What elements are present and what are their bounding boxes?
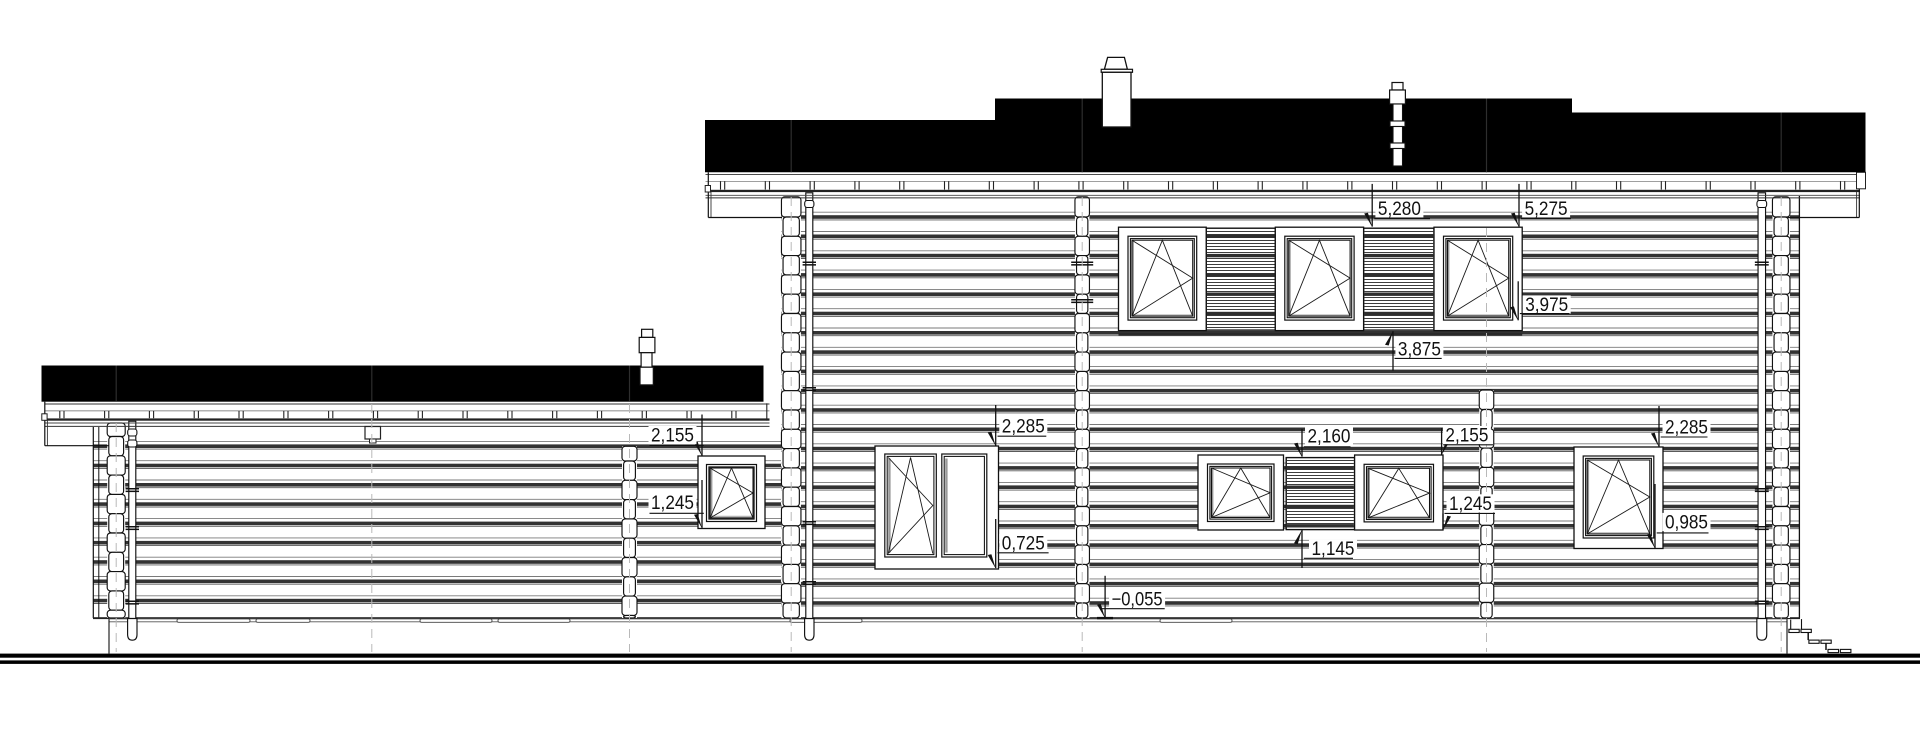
svg-text:3,975: 3,975 (1525, 294, 1568, 316)
svg-text:2,155: 2,155 (651, 425, 694, 447)
svg-text:5,280: 5,280 (1378, 198, 1421, 220)
svg-text:1,245: 1,245 (1449, 493, 1492, 515)
svg-text:0,985: 0,985 (1665, 512, 1708, 534)
svg-text:1,245: 1,245 (651, 492, 694, 514)
svg-text:0,725: 0,725 (1002, 533, 1045, 555)
svg-text:2,285: 2,285 (1002, 416, 1045, 438)
svg-text:1,145: 1,145 (1312, 538, 1355, 560)
svg-text:5,275: 5,275 (1525, 198, 1568, 220)
svg-text:2,155: 2,155 (1445, 425, 1488, 447)
svg-text:3,875: 3,875 (1398, 338, 1441, 360)
svg-text:2,285: 2,285 (1665, 416, 1708, 438)
svg-text:−0,055: −0,055 (1112, 589, 1163, 611)
svg-text:2,160: 2,160 (1308, 425, 1351, 447)
